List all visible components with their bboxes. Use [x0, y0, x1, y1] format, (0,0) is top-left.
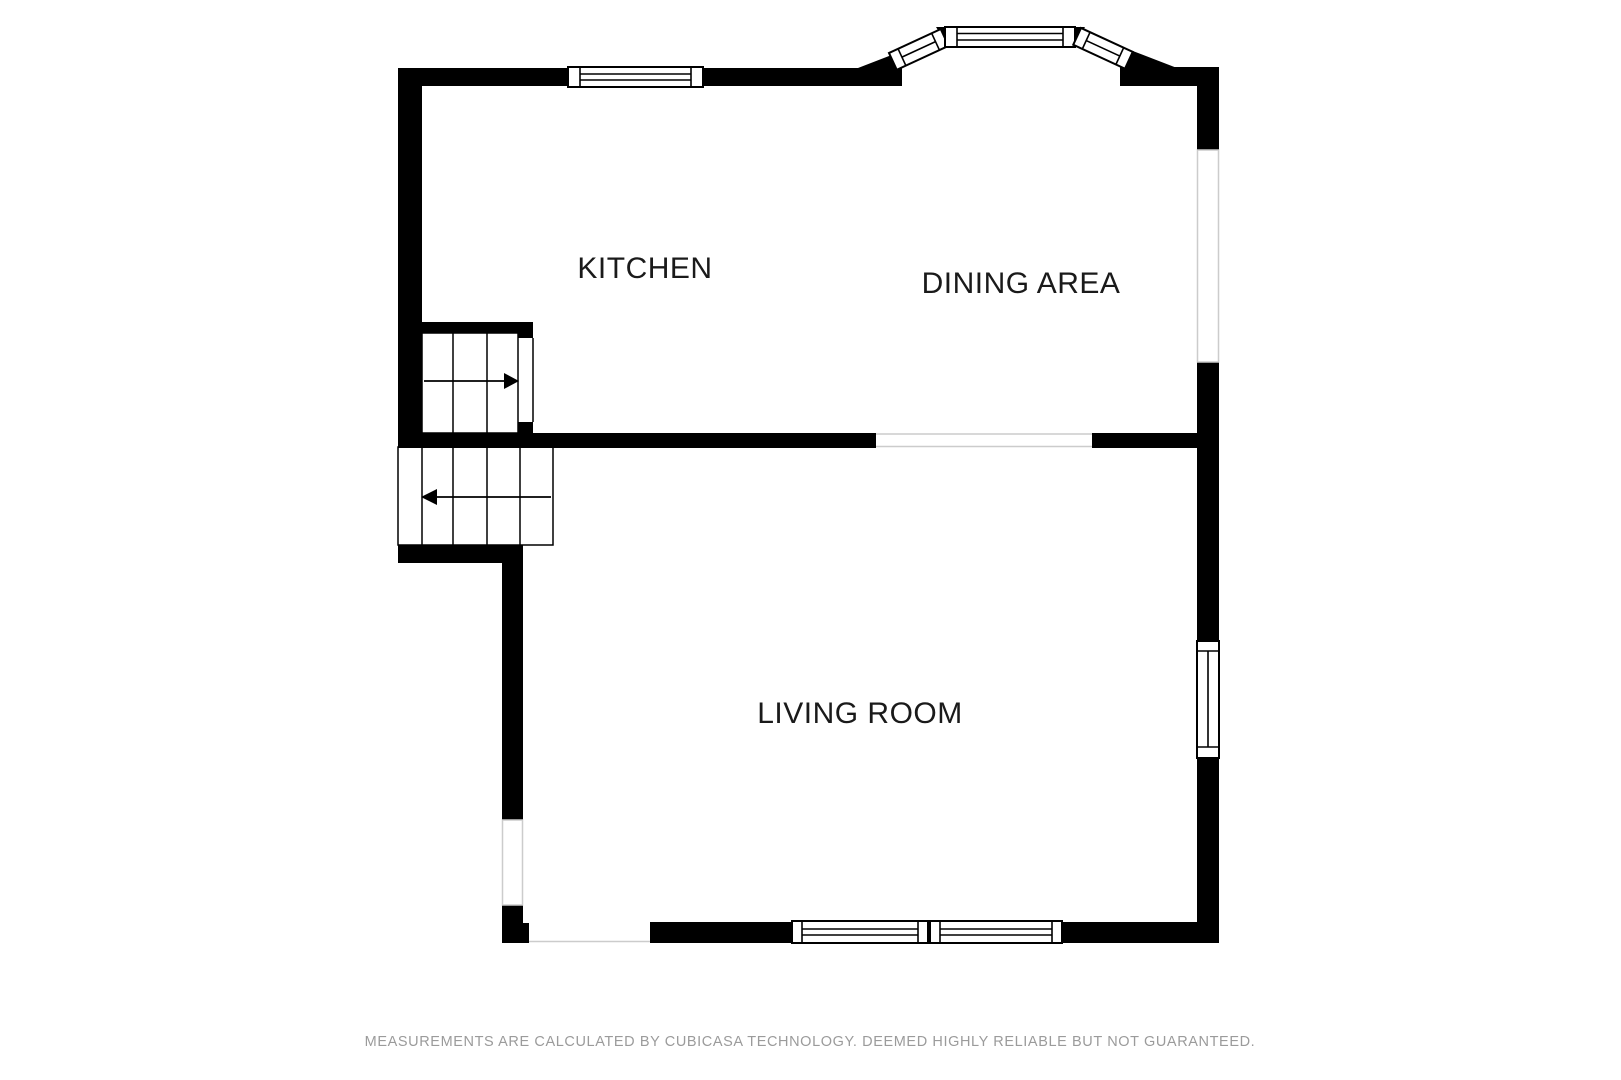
wall-stairs-cap-top: [518, 322, 533, 338]
wall-divider-left: [398, 433, 876, 448]
floorplan-canvas: KITCHEN DINING AREA LIVING ROOM MEASUREM…: [0, 0, 1621, 1080]
wall-stairs-bottom: [398, 545, 523, 563]
wall-stairs-cap-bottom: [518, 422, 533, 433]
wall-right-middle: [1197, 362, 1219, 641]
window-living-bottom-right: [930, 921, 1062, 943]
window-living-bottom-left: [792, 921, 928, 943]
wall-right-lower: [1197, 758, 1219, 943]
disclaimer-text: MEASUREMENTS ARE CALCULATED BY CUBICASA …: [365, 1034, 1256, 1050]
wall-stub-bottom-left-b: [502, 923, 529, 943]
window-kitchen: [568, 67, 703, 87]
opening-dining-right: [1198, 150, 1219, 362]
floorplan: KITCHEN DINING AREA LIVING ROOM MEASUREM…: [0, 0, 1621, 1080]
room-label-dining: DINING AREA: [922, 267, 1121, 300]
wall-living-left: [502, 563, 523, 820]
stairs-arrow-left-icon: [421, 489, 437, 505]
windows: [568, 27, 1219, 943]
bay-window-center: [945, 27, 1075, 47]
room-label-kitchen: KITCHEN: [577, 252, 712, 285]
bay-window-left: [889, 29, 949, 70]
walls: [398, 27, 1219, 943]
bay-window-right: [1073, 28, 1133, 69]
window-living-right: [1197, 641, 1219, 758]
wall-stub-bottom-left-a: [502, 905, 523, 923]
staircase-upper-flight: [422, 333, 533, 433]
wall-left: [398, 68, 422, 447]
wall-top-right: [1120, 67, 1219, 86]
wall-stairs-top: [398, 322, 518, 333]
staircase-lower-flight: [398, 447, 553, 545]
wall-divider-right: [1092, 433, 1219, 448]
wall-right-upper: [1197, 86, 1219, 150]
stairs-arrow-right-icon: [504, 373, 519, 389]
opening-living-left: [503, 820, 523, 905]
room-label-living: LIVING ROOM: [757, 697, 963, 730]
